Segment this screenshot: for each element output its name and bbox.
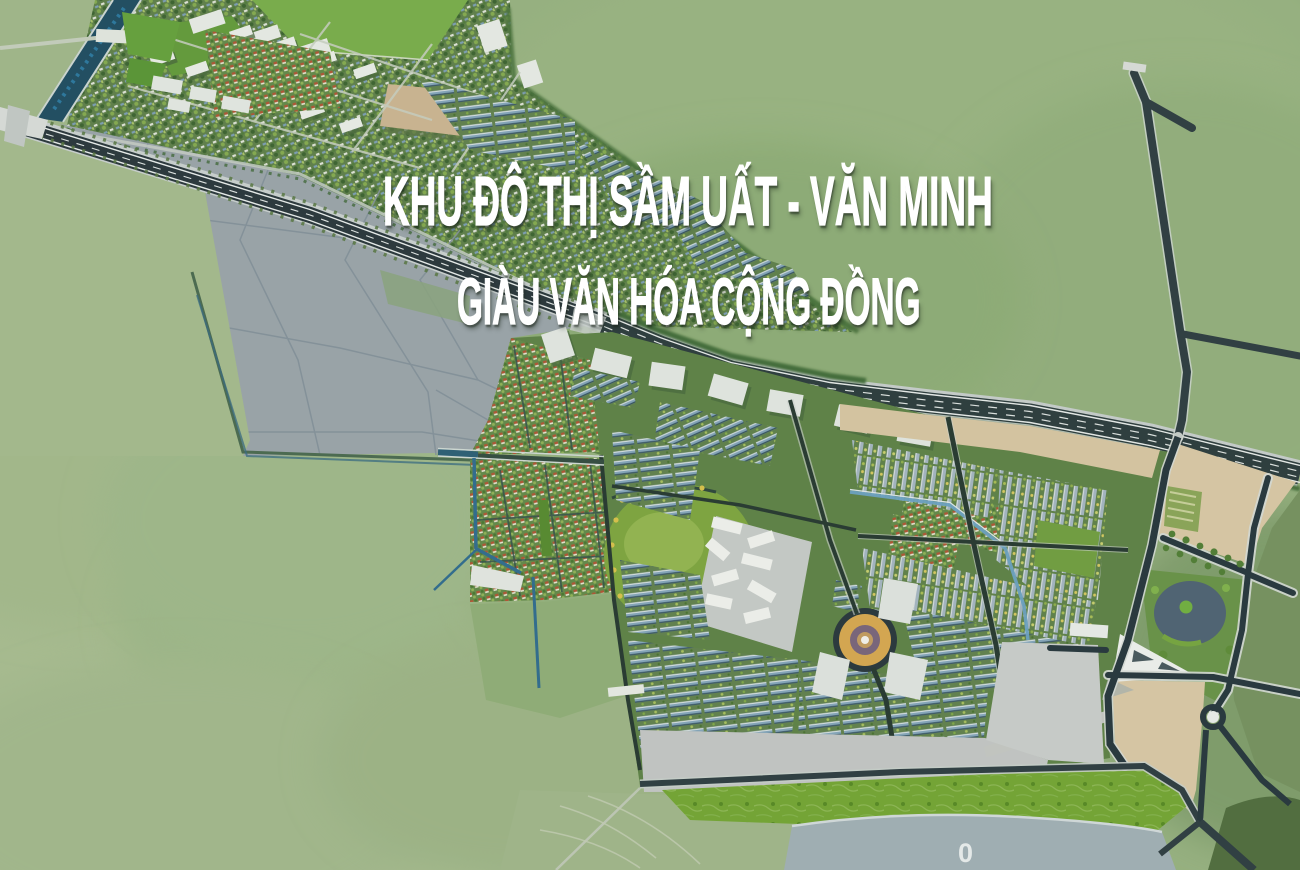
svg-text:0: 0 [958, 838, 973, 868]
